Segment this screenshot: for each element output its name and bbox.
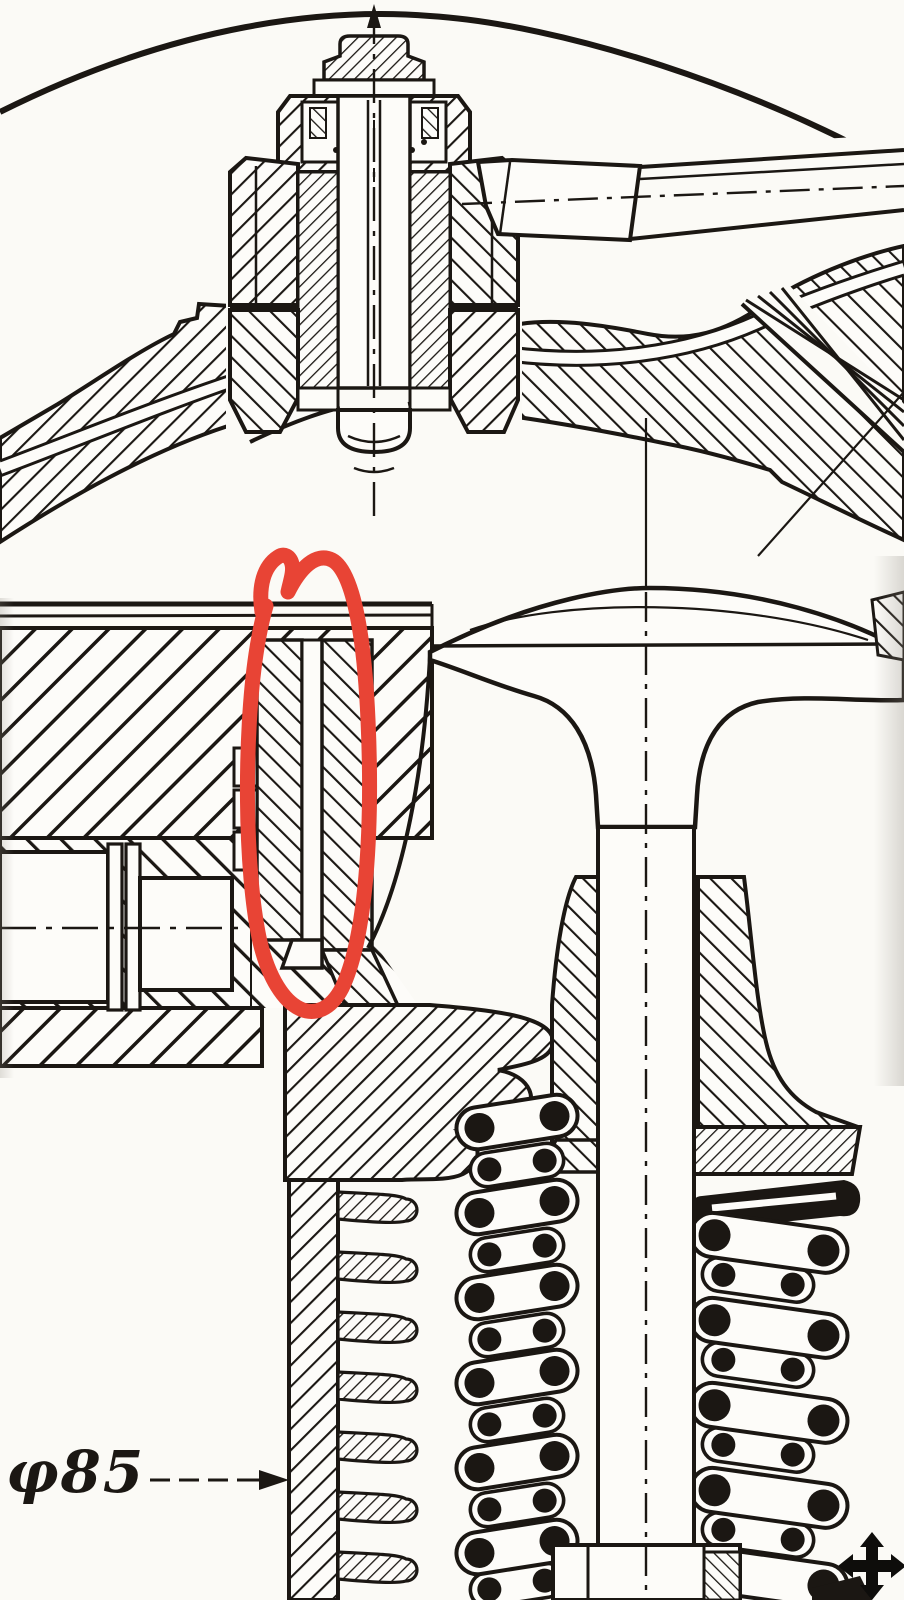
dimension-label: φ85 bbox=[6, 1438, 145, 1506]
technical-drawing: φ85 bbox=[0, 0, 904, 1600]
scan-shading-right bbox=[874, 556, 904, 1086]
pipe-connector bbox=[478, 160, 640, 240]
plug-hex-right bbox=[450, 310, 518, 432]
spring-seat-collar bbox=[694, 1127, 860, 1174]
valve-seat-line bbox=[430, 644, 904, 646]
valve-stem bbox=[598, 827, 694, 1600]
scanned-drawing-view: φ85 bbox=[0, 0, 904, 1600]
block-lower-band bbox=[0, 1008, 262, 1066]
plug-hex-left bbox=[230, 310, 298, 432]
cylinder-wall bbox=[289, 1180, 338, 1600]
scan-shading-left bbox=[0, 598, 14, 1078]
tappet-slot bbox=[302, 640, 322, 940]
plug-nut-left bbox=[230, 158, 298, 305]
